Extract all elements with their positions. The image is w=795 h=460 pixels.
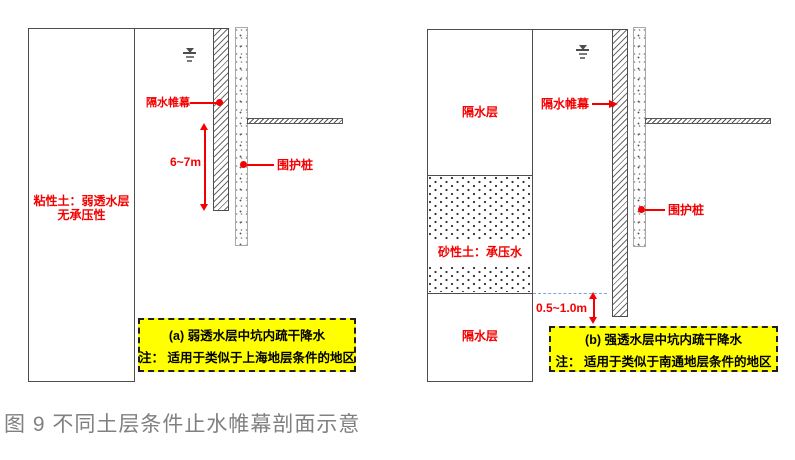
depth-label: 6~7m xyxy=(170,156,201,168)
left-diagram: 隔水帷幕 6~7m 围护桩 粘性土：弱透水层 无承压性 (a) 弱透水层中坑内疏… xyxy=(0,0,395,400)
note-box-b: (b) 强透水层中坑内疏干降水 注： 适用于类似于南通地层条件的地区 xyxy=(549,326,778,372)
sandy-layer-pattern-upper xyxy=(428,176,532,240)
retaining-pile xyxy=(633,27,646,247)
waterproof-curtain xyxy=(213,28,229,211)
pile-label: 围护桩 xyxy=(277,159,313,171)
curtain-leader-line xyxy=(190,102,217,104)
sandy-layer-pattern-lower xyxy=(428,266,532,292)
figure-caption: 图 9 不同土层条件止水帷幕剖面示意 xyxy=(4,408,360,438)
pit-floor-slab xyxy=(645,118,771,124)
pile-leader-line xyxy=(645,209,665,211)
ground-surface-line xyxy=(532,29,612,30)
water-table-icon xyxy=(576,45,589,59)
pile-leader-dot xyxy=(240,161,247,168)
water-table-icon xyxy=(183,48,196,62)
ground-surface-line xyxy=(134,28,214,29)
note-box-a: (a) 弱透水层中坑内疏干降水 注： 适用于类似于上海地层条件的地区 xyxy=(138,318,356,372)
note-b-text: 注： 适用于类似于南通地层条件的地区 xyxy=(556,351,772,370)
note-a-title: (a) 弱透水层中坑内疏干降水 xyxy=(169,325,325,344)
soil-description: 粘性土：弱透水层 无承压性 xyxy=(28,194,135,222)
curtain-leader-line xyxy=(592,103,610,105)
figure-canvas: 隔水帷幕 6~7m 围护桩 粘性土：弱透水层 无承压性 (a) 弱透水层中坑内疏… xyxy=(0,0,795,460)
curtain-label: 隔水帷幕 xyxy=(146,97,190,109)
embedment-dimension-arrow xyxy=(589,292,598,324)
curtain-leader-dot xyxy=(216,99,223,106)
right-diagram: 隔水层 砂性土：承压水 隔水层 隔水帷幕 围护桩 xyxy=(395,0,795,400)
pile-leader-line xyxy=(247,164,274,166)
top-layer-label: 隔水层 xyxy=(427,105,533,119)
bottom-layer-label: 隔水层 xyxy=(427,329,533,343)
pile-leader-dot xyxy=(638,206,645,213)
pile-label: 围护桩 xyxy=(668,204,704,216)
middle-layer-label: 砂性土：承压水 xyxy=(427,245,533,259)
curtain-label: 隔水帷幕 xyxy=(541,98,589,110)
layer-boundary-lower xyxy=(427,293,533,294)
soil-description-line1: 粘性土：弱透水层 xyxy=(28,194,135,208)
soil-description-line2: 无承压性 xyxy=(28,208,135,222)
pit-floor-slab xyxy=(247,118,343,124)
curtain-leader-arrow xyxy=(609,100,618,108)
note-a-text: 注： 适用于类似于上海地层条件的地区 xyxy=(139,347,355,366)
retaining-pile xyxy=(235,27,248,246)
waterproof-curtain xyxy=(612,29,628,317)
note-b-title: (b) 强透水层中坑内疏干降水 xyxy=(585,329,742,348)
embedment-depth-label: 0.5~1.0m xyxy=(536,302,587,314)
depth-dimension-arrow xyxy=(200,123,209,211)
